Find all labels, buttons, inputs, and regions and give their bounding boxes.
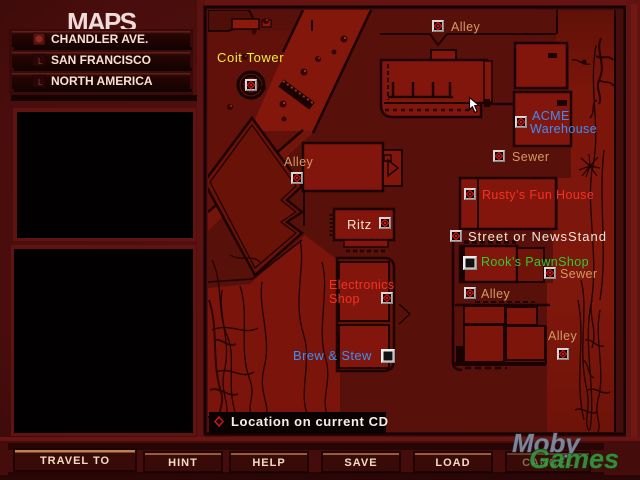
svg-text:Sewer: Sewer xyxy=(512,150,549,164)
svg-text:Games: Games xyxy=(529,444,619,474)
svg-text:HINT: HINT xyxy=(168,457,198,469)
svg-text:LOAD: LOAD xyxy=(435,457,470,469)
svg-text:NORTH AMERICA: NORTH AMERICA xyxy=(51,74,153,88)
svg-text:Brew & Stew: Brew & Stew xyxy=(293,348,372,363)
svg-text:TRAVEL TO: TRAVEL TO xyxy=(40,455,110,467)
svg-text:L: L xyxy=(38,57,43,66)
svg-text:L: L xyxy=(38,78,43,87)
svg-text:Location on current CD: Location on current CD xyxy=(231,414,389,429)
svg-text:SAVE: SAVE xyxy=(344,457,377,469)
svg-text:Shop: Shop xyxy=(329,292,360,306)
svg-text:Ritz: Ritz xyxy=(347,217,372,232)
svg-text:Warehouse: Warehouse xyxy=(530,122,597,136)
svg-text:Electronics: Electronics xyxy=(329,278,395,292)
svg-text:Sewer: Sewer xyxy=(560,267,597,281)
svg-text:CHANDLER AVE.: CHANDLER AVE. xyxy=(51,32,148,46)
svg-text:SAN FRANCISCO: SAN FRANCISCO xyxy=(51,53,151,67)
svg-text:Alley: Alley xyxy=(284,155,313,169)
svg-text:HELP: HELP xyxy=(252,457,285,469)
svg-text:ACME: ACME xyxy=(532,109,570,123)
svg-text:Alley: Alley xyxy=(481,287,510,301)
svg-text:Alley: Alley xyxy=(451,20,480,34)
svg-text:Alley: Alley xyxy=(548,329,577,343)
svg-text:Street or NewsStand: Street or NewsStand xyxy=(468,229,607,244)
svg-text:Rusty’s Fun House: Rusty’s Fun House xyxy=(482,188,594,202)
svg-text:Coit Tower: Coit Tower xyxy=(217,50,284,65)
